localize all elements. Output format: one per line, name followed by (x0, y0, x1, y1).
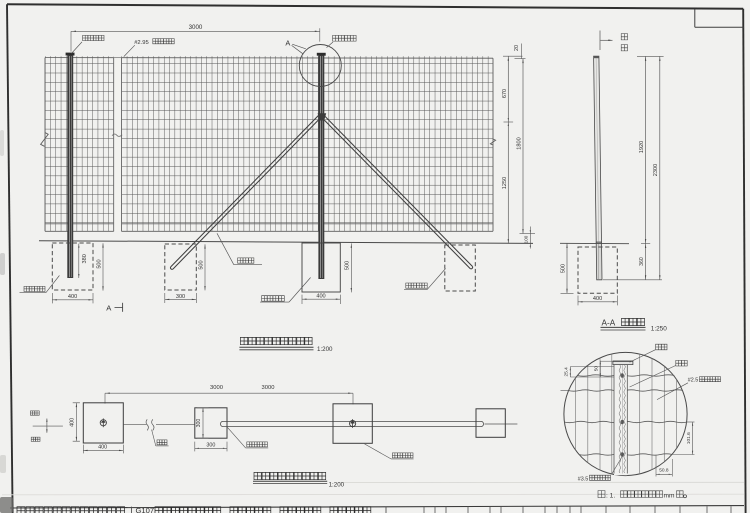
svg-text:500: 500 (345, 261, 351, 270)
svg-text:3000: 3000 (210, 385, 223, 391)
svg-text:#2.95: #2.95 (134, 40, 149, 46)
svg-text:101.6: 101.6 (686, 432, 692, 444)
svg-text:50: 50 (593, 366, 599, 372)
svg-text:300: 300 (196, 419, 202, 428)
svg-text:400: 400 (69, 418, 75, 427)
svg-text:3000: 3000 (189, 24, 203, 31)
svg-text:670: 670 (502, 89, 508, 98)
svg-text:360: 360 (639, 257, 645, 266)
svg-text:A: A (285, 39, 290, 48)
svg-text:25.4: 25.4 (563, 367, 569, 377)
svg-text:300: 300 (176, 294, 185, 300)
svg-text:500: 500 (198, 260, 204, 269)
svg-text:#3.5: #3.5 (578, 477, 589, 483)
svg-text:G107: G107 (136, 506, 155, 513)
svg-text:mm: mm (664, 493, 675, 500)
svg-text:1800: 1800 (517, 137, 523, 149)
svg-text:2300: 2300 (653, 164, 659, 176)
svg-text:#2.5: #2.5 (688, 378, 699, 384)
svg-text:400: 400 (593, 296, 602, 302)
svg-text:500: 500 (97, 259, 103, 268)
svg-text:400: 400 (68, 294, 77, 300)
svg-text:300: 300 (206, 443, 215, 449)
svg-text:400: 400 (98, 445, 107, 451)
svg-text:1:250: 1:250 (651, 325, 667, 332)
svg-text:400: 400 (316, 294, 325, 300)
svg-text:20: 20 (514, 45, 520, 51)
svg-text:: 1.: : 1. (606, 493, 615, 500)
svg-text:3000: 3000 (262, 385, 275, 391)
svg-text:380: 380 (82, 254, 88, 263)
svg-text:A-A: A-A (602, 319, 616, 328)
svg-text:1920: 1920 (639, 141, 645, 153)
svg-text:1250: 1250 (502, 177, 508, 189)
svg-text:1:200: 1:200 (317, 346, 333, 353)
svg-text:1:200: 1:200 (329, 482, 345, 489)
svg-text:500: 500 (560, 264, 566, 273)
svg-text:100: 100 (523, 235, 528, 243)
svg-text:50.8: 50.8 (659, 468, 669, 474)
